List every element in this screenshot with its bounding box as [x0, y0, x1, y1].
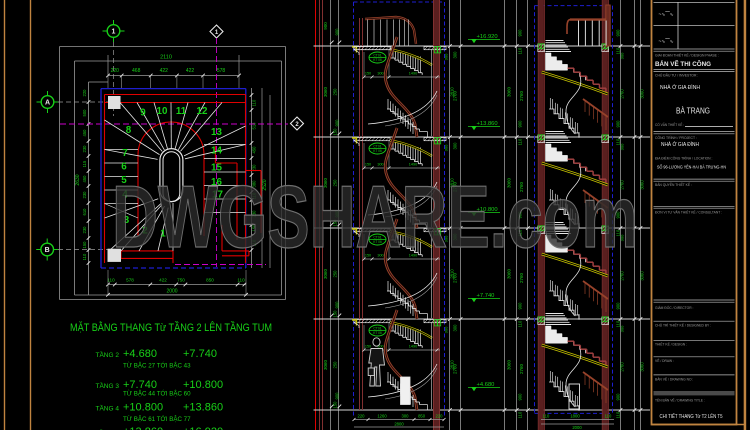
svg-text:110: 110	[518, 411, 523, 418]
svg-text:110: 110	[107, 278, 115, 283]
svg-text:CT01: CT01	[373, 53, 381, 57]
svg-text:3060: 3060	[640, 180, 645, 190]
svg-text:900: 900	[335, 119, 340, 127]
svg-text:BÀ TRANG: BÀ TRANG	[676, 106, 710, 116]
svg-text:900: 900	[323, 22, 328, 30]
svg-text:ĐƠN VỊ TƯ VẤN THIẾT KẾ / CONSU: ĐƠN VỊ TƯ VẤN THIẾT KẾ / CONSULTANT :	[655, 210, 722, 215]
svg-text:+16.920: +16.920	[183, 426, 223, 430]
svg-text:110: 110	[518, 138, 523, 145]
svg-text:3060: 3060	[323, 268, 328, 279]
svg-text:230: 230	[82, 226, 87, 234]
svg-text:ĐỊA ĐIỂM CÔNG TRÌNH / LOCATION: ĐỊA ĐIỂM CÔNG TRÌNH / LOCATION :	[655, 156, 712, 161]
svg-text:220: 220	[436, 414, 444, 419]
svg-text:12: 12	[197, 106, 208, 117]
svg-text:300: 300	[620, 143, 625, 150]
svg-text:THIẾT KẾ / DESIGN :: THIẾT KẾ / DESIGN :	[655, 342, 687, 347]
svg-text:110: 110	[237, 278, 245, 283]
svg-text:BẢN QUYỀN THIẾT KẾ :: BẢN QUYỀN THIẾT KẾ :	[655, 182, 692, 187]
svg-text:+7.740: +7.740	[183, 348, 217, 360]
svg-text:422: 422	[186, 68, 195, 74]
svg-text:300: 300	[453, 51, 458, 59]
svg-text:CỐ VẤN THIẾT KẾ :: CỐ VẤN THIẾT KẾ :	[655, 122, 684, 127]
svg-text:1490: 1490	[409, 345, 417, 349]
svg-text:300: 300	[444, 326, 449, 333]
svg-text:1260: 1260	[377, 414, 387, 419]
svg-text:300: 300	[377, 345, 383, 349]
svg-text:900: 900	[518, 393, 523, 401]
svg-text:500: 500	[82, 109, 87, 117]
svg-text:3060: 3060	[323, 86, 328, 97]
svg-text:150: 150	[365, 72, 371, 76]
svg-text:300: 300	[377, 72, 383, 76]
svg-text:2110: 2110	[160, 55, 172, 61]
svg-text:2760: 2760	[620, 89, 625, 99]
svg-text:450: 450	[82, 129, 87, 137]
svg-text:2760: 2760	[620, 362, 625, 372]
svg-text:GIAI ĐOẠN THIẾT KẾ / DESIGN PH: GIAI ĐOẠN THIẾT KẾ / DESIGN PHASE :	[655, 53, 719, 58]
svg-text:110: 110	[543, 414, 550, 419]
svg-text:110: 110	[518, 47, 523, 54]
svg-text:NHÀ Ở GIA ĐÌNH: NHÀ Ở GIA ĐÌNH	[661, 141, 699, 148]
svg-text:2800: 2800	[394, 422, 404, 427]
svg-text:300: 300	[620, 52, 625, 59]
svg-text:300: 300	[620, 325, 625, 332]
svg-text:GIÁM ĐỐC / DIRECTOR :: GIÁM ĐỐC / DIRECTOR :	[655, 305, 693, 310]
svg-text:+4.680: +4.680	[477, 382, 495, 388]
svg-text:CÔNG TRÌNH / PROJECT :: CÔNG TRÌNH / PROJECT :	[655, 135, 697, 140]
svg-text:+13.860: +13.860	[477, 121, 498, 127]
svg-text:220: 220	[82, 89, 87, 97]
svg-text:750: 750	[177, 278, 185, 283]
svg-text:+10.800: +10.800	[183, 379, 223, 391]
svg-text:13: 13	[211, 127, 222, 138]
svg-text:2630: 2630	[75, 174, 81, 185]
svg-text:14: 14	[211, 146, 222, 157]
svg-text:8: 8	[126, 125, 132, 136]
svg-text:A: A	[45, 100, 50, 107]
svg-text:300: 300	[444, 144, 449, 151]
svg-text:MẶT BẰNG THANG Từ TẦNG 2 LÊN T: MẶT BẰNG THANG Từ TẦNG 2 LÊN TẦNG TUM	[70, 321, 272, 334]
svg-text:150: 150	[365, 163, 371, 167]
svg-text:2000: 2000	[572, 425, 582, 430]
svg-text:900: 900	[616, 302, 621, 310]
svg-text:1800: 1800	[570, 414, 580, 419]
svg-text:300: 300	[453, 324, 458, 332]
svg-text:300: 300	[377, 163, 383, 167]
svg-text:10: 10	[157, 106, 168, 117]
svg-text:2810: 2810	[450, 269, 455, 279]
svg-text:KT 06: KT 06	[373, 331, 382, 335]
svg-text:110: 110	[616, 411, 621, 418]
svg-text:230: 230	[82, 145, 87, 153]
svg-text:~∿⁀∿: ~∿⁀∿	[658, 38, 673, 45]
svg-text:3060: 3060	[640, 271, 645, 281]
svg-text:850: 850	[206, 278, 214, 283]
svg-text:9: 9	[140, 108, 146, 119]
svg-text:300: 300	[453, 142, 458, 150]
svg-text:850: 850	[418, 414, 426, 419]
svg-text:+13.860: +13.860	[123, 426, 163, 430]
svg-text:2810: 2810	[450, 360, 455, 370]
svg-text:110: 110	[518, 320, 523, 327]
svg-text:422: 422	[159, 278, 167, 283]
svg-text:3060: 3060	[507, 86, 512, 97]
svg-text:150: 150	[365, 345, 371, 349]
svg-text:900: 900	[616, 120, 621, 128]
svg-text:2760: 2760	[519, 90, 524, 101]
svg-text:300: 300	[402, 414, 410, 419]
svg-text:BẢN VẼ THI CÔNG: BẢN VẼ THI CÔNG	[655, 59, 711, 68]
svg-text:CHỦ ĐẦU TƯ / INVESTOR :: CHỦ ĐẦU TƯ / INVESTOR :	[655, 73, 698, 78]
svg-text:2760: 2760	[519, 363, 524, 374]
svg-text:900: 900	[518, 120, 523, 128]
svg-text:TỪ BẬC 61 TỚI BẬC 77: TỪ BẬC 61 TỚI BẬC 77	[123, 416, 191, 423]
svg-text:BẢN VẼ / DRAWING NO :: BẢN VẼ / DRAWING NO :	[655, 377, 693, 382]
svg-text:+16.920: +16.920	[477, 34, 498, 40]
svg-text:3060: 3060	[323, 359, 328, 370]
svg-text:900: 900	[335, 301, 340, 309]
svg-text:300: 300	[444, 53, 449, 60]
svg-text:150: 150	[333, 401, 338, 409]
svg-text:KT 06: KT 06	[373, 149, 382, 153]
svg-text:250: 250	[333, 361, 338, 369]
svg-text:2000: 2000	[166, 289, 177, 295]
svg-text:3060: 3060	[507, 359, 512, 370]
svg-text:TÊN BẢN VẼ / DRAWING TITLE :: TÊN BẢN VẼ / DRAWING TITLE :	[655, 398, 705, 403]
svg-text:NHÀ Ở GIA ĐÌNH: NHÀ Ở GIA ĐÌNH	[660, 84, 700, 91]
svg-text:CHI TIẾT THANG Từ T2 LÊN T5: CHI TIẾT THANG Từ T2 LÊN T5	[660, 412, 723, 420]
svg-text:110: 110	[605, 414, 612, 419]
svg-text:422: 422	[160, 68, 169, 74]
svg-text:3060: 3060	[640, 362, 645, 372]
svg-text:~∿⁀∿: ~∿⁀∿	[658, 11, 673, 18]
svg-text:2760: 2760	[620, 271, 625, 281]
svg-text:450: 450	[82, 175, 87, 183]
svg-text:CT01: CT01	[373, 326, 381, 330]
svg-text:900: 900	[616, 393, 621, 401]
svg-text:CT01: CT01	[373, 144, 381, 148]
svg-text:578: 578	[126, 278, 134, 283]
svg-text:220: 220	[358, 414, 366, 419]
svg-text:VẼ / DRAW :: VẼ / DRAW :	[655, 358, 674, 363]
svg-text:900: 900	[335, 28, 340, 36]
svg-text:+7.740: +7.740	[123, 379, 157, 391]
svg-text:900: 900	[518, 29, 523, 37]
svg-text:TỪ BẬC 44 TỚI BẬC 60: TỪ BẬC 44 TỚI BẬC 60	[123, 391, 191, 398]
svg-text:110: 110	[82, 253, 87, 260]
svg-text:230: 230	[82, 191, 87, 199]
svg-text:11: 11	[176, 106, 187, 117]
svg-text:3060: 3060	[507, 268, 512, 279]
svg-text:518: 518	[252, 122, 257, 130]
svg-text:1: 1	[112, 29, 116, 36]
svg-text:+4.680: +4.680	[123, 348, 157, 360]
svg-text:900: 900	[616, 29, 621, 37]
svg-text:3060: 3060	[640, 89, 645, 99]
svg-text:900: 900	[335, 392, 340, 400]
svg-text:610: 610	[82, 208, 87, 216]
svg-text:450: 450	[252, 146, 257, 154]
svg-text:B: B	[45, 247, 50, 254]
svg-text:DWGSHARE.com: DWGSHARE.com	[112, 167, 638, 266]
svg-text:578: 578	[217, 68, 226, 74]
svg-text:468: 468	[132, 68, 141, 74]
svg-text:250: 250	[333, 88, 338, 96]
svg-text:1490: 1490	[409, 163, 417, 167]
svg-text:150: 150	[82, 241, 87, 249]
svg-text:150: 150	[333, 128, 338, 136]
svg-text:250: 250	[333, 270, 338, 278]
svg-text:+7.740: +7.740	[477, 293, 495, 299]
svg-text:900: 900	[518, 302, 523, 310]
svg-text:220: 220	[111, 68, 120, 74]
svg-text:115: 115	[82, 160, 87, 167]
svg-text:150: 150	[333, 310, 338, 318]
svg-text:2760: 2760	[519, 272, 524, 283]
svg-text:KT 06: KT 06	[373, 58, 382, 62]
svg-text:2810: 2810	[450, 87, 455, 97]
svg-text:7: 7	[122, 148, 128, 159]
svg-text:+10.800: +10.800	[123, 402, 163, 414]
svg-text:110: 110	[252, 99, 257, 106]
svg-text:+13.860: +13.860	[183, 402, 223, 414]
svg-text:1490: 1490	[409, 72, 417, 76]
svg-text:SỐ 96-LƯƠNG YÊN-HAI BÀ TRƯNG-H: SỐ 96-LƯƠNG YÊN-HAI BÀ TRƯNG-HN	[657, 163, 726, 170]
svg-text:TỪ BẬC 27 TỚI BẬC 43: TỪ BẬC 27 TỚI BẬC 43	[123, 363, 191, 370]
svg-text:CHỦ TRÌ THIẾT KẾ / DESIGNED BY: CHỦ TRÌ THIẾT KẾ / DESIGNED BY :	[655, 323, 711, 328]
